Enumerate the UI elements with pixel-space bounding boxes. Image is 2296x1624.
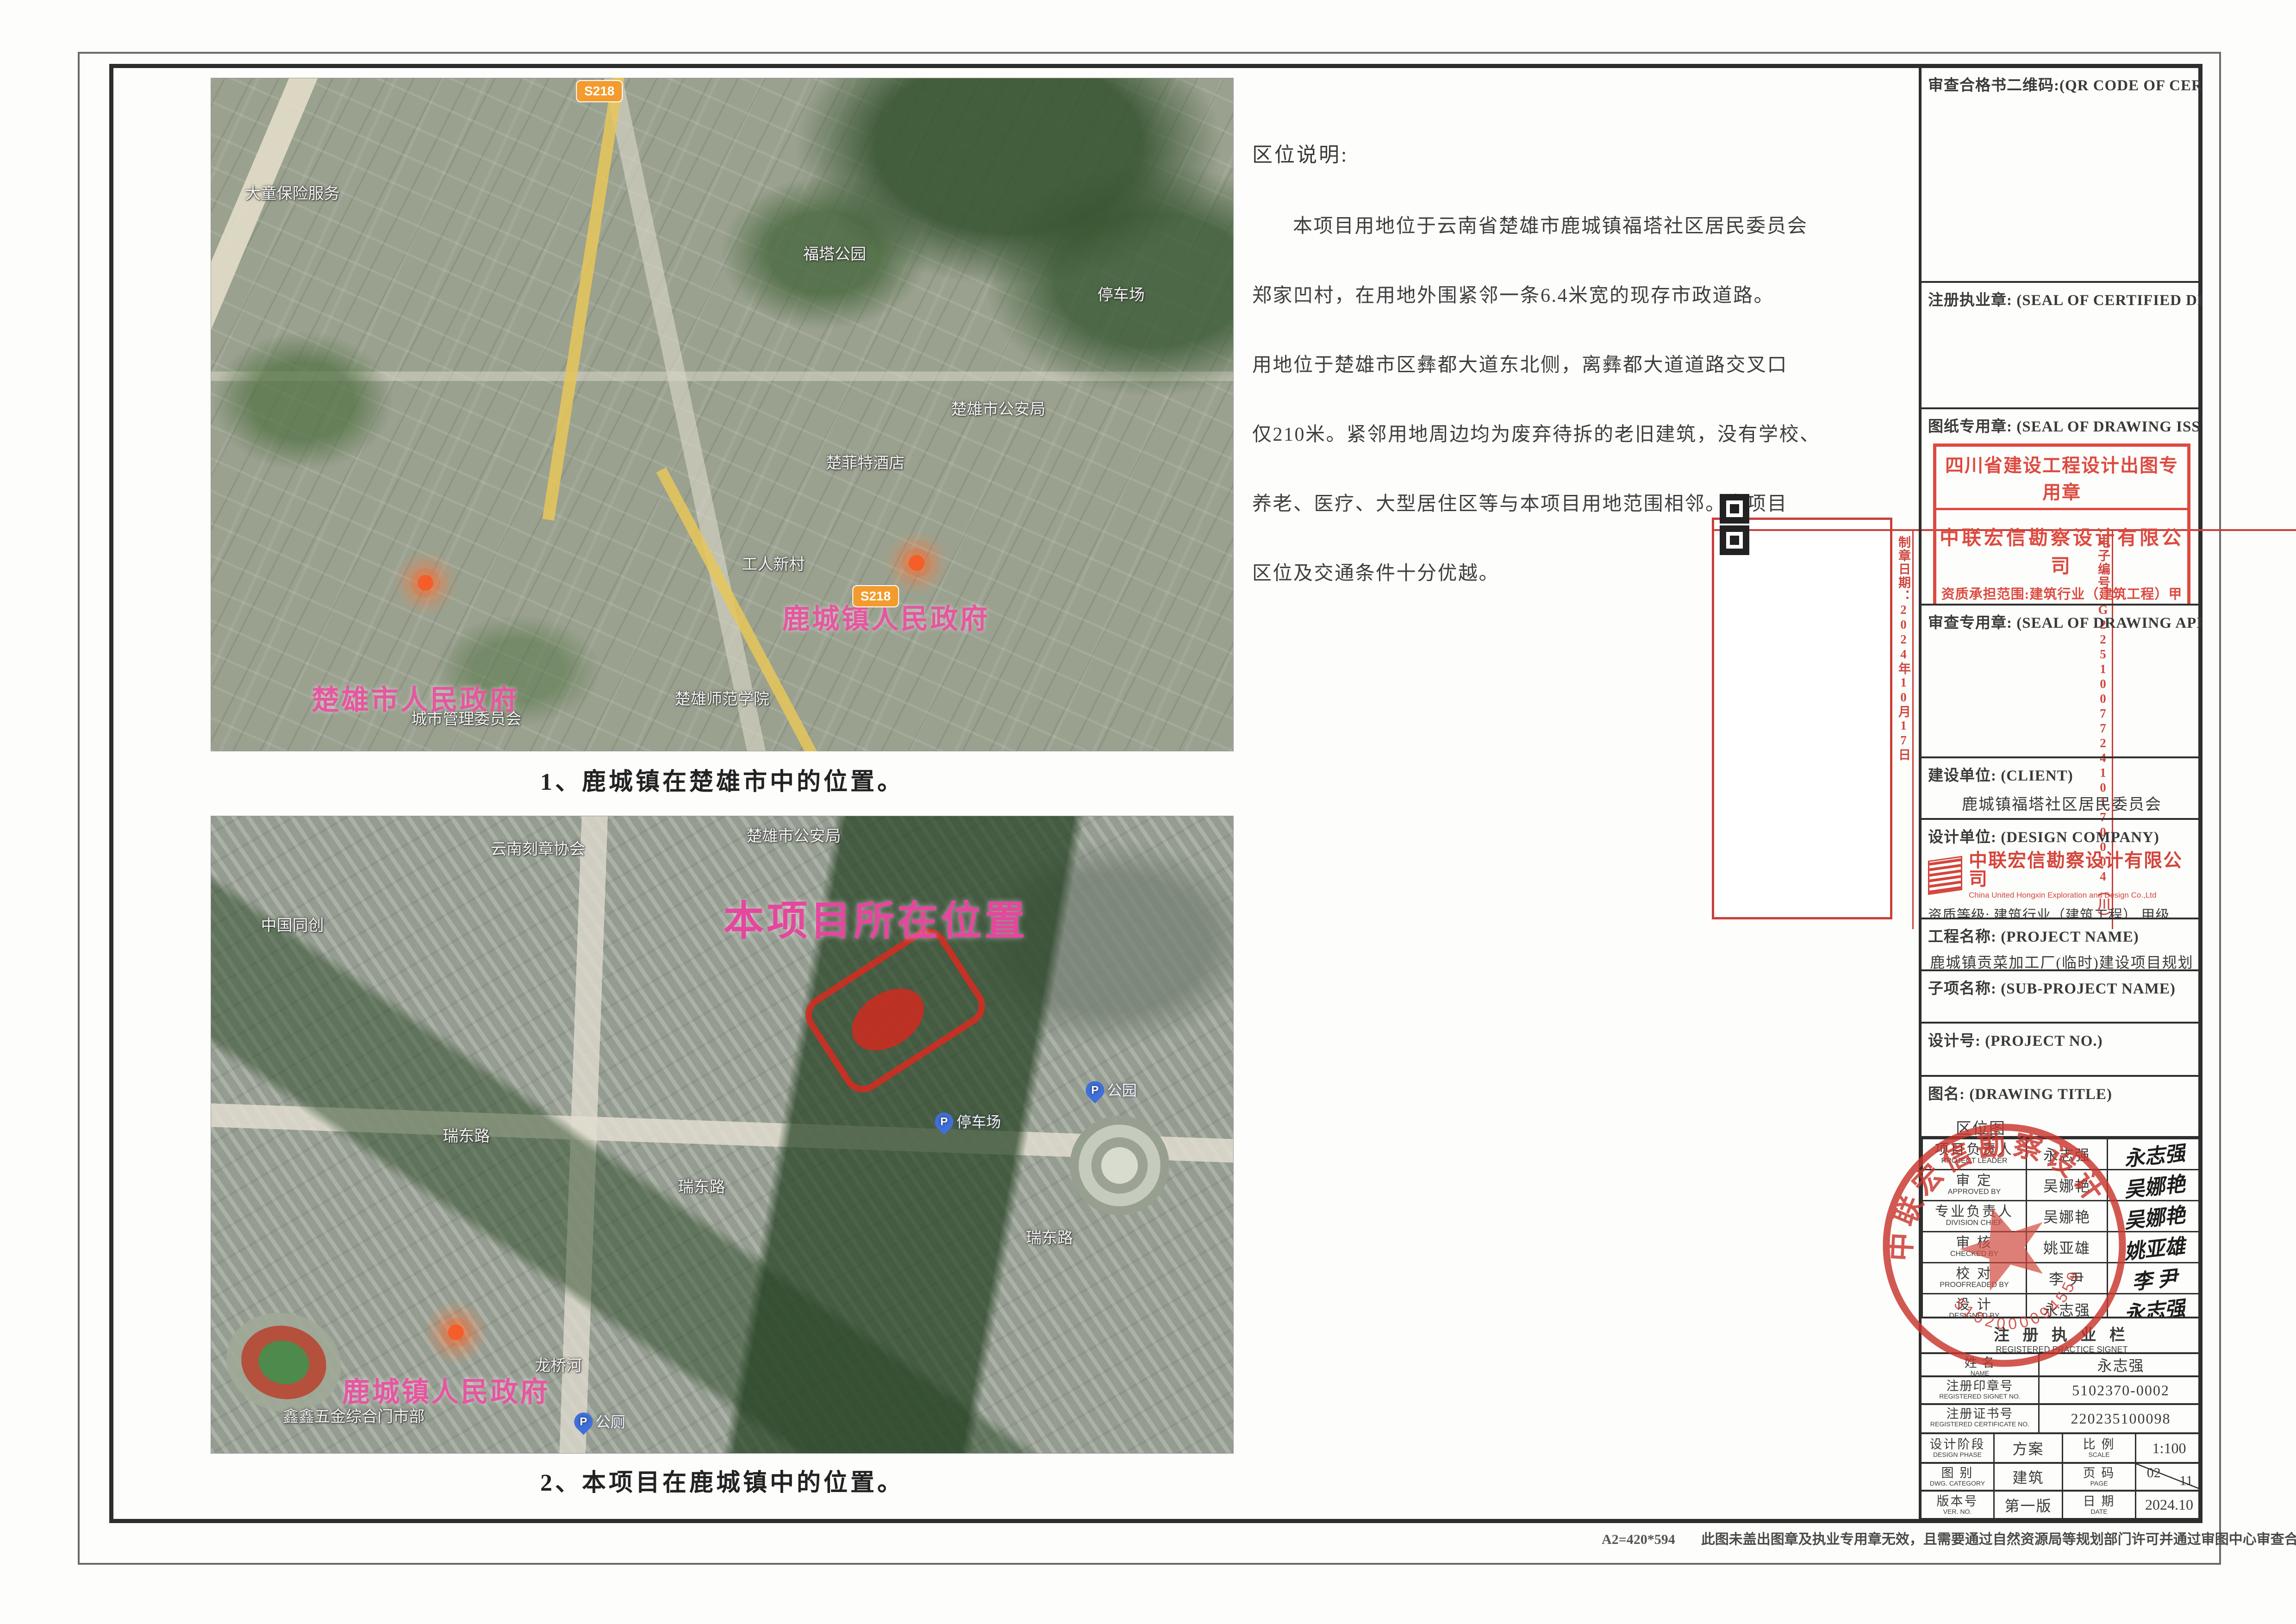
handwritten-signature: 永志强 — [2122, 1294, 2186, 1319]
page-current: 02 — [2147, 1465, 2161, 1481]
handwritten-signature: 吴娜艳 — [2122, 1170, 2186, 1201]
reg-row-value: 220235100098 — [2040, 1405, 2202, 1432]
title-block-footer-grid: 设计阶段DESIGN PHASE方案比 例SCALE1:100图 别DWG. C… — [1922, 1434, 2202, 1520]
signature-printed-name: 吴娜艳 — [2027, 1170, 2108, 1201]
map-poi-label: 楚雄师范学院 — [675, 686, 769, 709]
grid-label: 版本号VER. NO. — [1922, 1492, 1995, 1518]
signature-printed-name: 李 尹 — [2027, 1263, 2108, 1294]
signature-row: 设 计DESIGNED BY永志强永志强 — [1922, 1294, 2202, 1319]
map-poi-label: 福塔公园 — [803, 242, 866, 264]
section-project-name: 工程名称: (PROJECT NAME) 鹿城镇贡菜加工厂(临时)建设项目规划设… — [1922, 919, 2202, 971]
stamp-company: 中联宏信勘察设计有限公司 — [1938, 522, 2185, 579]
grid-label: 图 别DWG. CATEGORY — [1922, 1464, 1995, 1490]
registered-practice-row: 注册印章号REGISTERED SIGNET NO.5102370-0002 — [1922, 1377, 2202, 1405]
page-total: 11 — [2179, 1473, 2193, 1489]
reg-header-en: REGISTERED PRACTICE SIGNET — [1928, 1345, 2196, 1354]
registered-practice-row: 注册证书号REGISTERED CERTIFICATE NO.220235100… — [1922, 1405, 2202, 1434]
stamp-scope: 资质承担范围:建筑行业（建筑工程）甲级 — [1938, 583, 2185, 606]
signature-row: 审 核CHECKED BY姚亚雄姚亚雄 — [1922, 1232, 2202, 1263]
signature-row: 校 对PROOFREADED BY李 尹李 尹 — [1922, 1263, 2202, 1294]
grid-value: 建筑 — [1995, 1464, 2063, 1490]
reg-row-label: 注册证书号REGISTERED CERTIFICATE NO. — [1922, 1405, 2040, 1432]
map-poi-label: 瑞东路 — [1026, 1225, 1073, 1248]
map-poi-label: 楚雄市公安局 — [951, 396, 1046, 419]
gov-location-marker-icon — [882, 528, 951, 598]
signature-table: 项目负责人PROJECT LEADER永志强永志强审 定APPROVED BY吴… — [1922, 1138, 2202, 1318]
gov-location-marker-icon — [391, 548, 460, 618]
section-label: 子项名称: (SUB-PROJECT NAME) — [1928, 976, 2196, 998]
qr-stamp-column-text: 制章日期：2024年10月17日 — [1714, 531, 1912, 929]
grid-label: 日 期DATE — [2063, 1492, 2136, 1518]
reg-header-cn: 注 册 执 业 栏 — [1928, 1322, 2196, 1345]
section-label: 设计号: (PROJECT NO.) — [1928, 1028, 2196, 1050]
satellite-map-town: 楚雄市公安局云南刻章协会中国同创瑞东路瑞东路瑞东路P停车场P公园龙桥河鑫鑫五金综… — [211, 816, 1234, 1454]
section-approval-seal: 审查专用章: (SEAL OF DRAWING APPROVAL) — [1922, 606, 2202, 758]
map2-caption: 2、本项目在鹿城镇中的位置。 — [211, 1463, 1234, 1498]
section-label: 图纸专用章: (SEAL OF DRAWING ISSUEE) — [1928, 414, 2196, 436]
map-poi-label: 中国同创 — [261, 913, 324, 936]
handwritten-signature: 吴娜艳 — [2122, 1201, 2186, 1232]
map-pin-icon: P — [931, 1109, 958, 1135]
signature-cell: 永志强 — [2108, 1294, 2202, 1319]
company-name-en: China United Hongxin Exploration and Des… — [1969, 891, 2196, 899]
signature-cell: 姚亚雄 — [2108, 1232, 2202, 1263]
section-label: 注册执业章: (SEAL OF CERTIFIED DESIGNER) — [1928, 287, 2196, 310]
description-line: 郑家凹村，在用地外围紧邻一条6.4米宽的现存市政道路。 — [1252, 285, 1909, 306]
section-label: 图名: (DRAWING TITLE) — [1928, 1081, 2196, 1104]
grid-label: 设计阶段DESIGN PHASE — [1922, 1434, 1995, 1462]
signature-role: 校 对PROOFREADED BY — [1922, 1263, 2027, 1294]
section-sub-project: 子项名称: (SUB-PROJECT NAME) — [1922, 971, 2202, 1024]
map-poi-label: 楚雄市公安局 — [747, 824, 841, 846]
handwritten-signature: 永志强 — [2122, 1139, 2186, 1170]
signature-cell: 李 尹 — [2108, 1263, 2202, 1294]
reg-row-value: 5102370-0002 — [2040, 1377, 2202, 1403]
map-poi-label: 大童保险服务 — [245, 181, 340, 204]
signature-row: 项目负责人PROJECT LEADER永志强永志强 — [1922, 1139, 2202, 1170]
drawing-sheet: 大童保险服务福塔公园停车场楚雄市公安局楚菲特酒店工人新村城市管理委员会楚雄师范学… — [0, 0, 2296, 1624]
grid-value: 2024.10 — [2136, 1492, 2202, 1518]
signature-printed-name: 姚亚雄 — [2027, 1232, 2108, 1263]
map-poi-label: P停车场 — [934, 1111, 1001, 1133]
page-number-cell: 0211 — [2136, 1464, 2202, 1490]
map-poi-label: S218 — [576, 80, 623, 102]
stamp-body: 中联宏信勘察设计有限公司 资质承担范围:建筑行业（建筑工程）甲级 — [1936, 510, 2187, 606]
map-poi-label: 云南刻章协会 — [491, 836, 585, 859]
signature-cell: 永志强 — [2108, 1139, 2202, 1170]
description-line: 仅210米。紧邻用地周边均为废弃待拆的老旧建筑，没有学校、 — [1252, 424, 1909, 445]
paper-size-note: A2=420*594 — [1602, 1532, 1675, 1548]
map-poi-label: 瑞东路 — [678, 1174, 725, 1197]
footer-grid-row: 版本号VER. NO.第一版日 期DATE2024.10 — [1922, 1492, 2202, 1520]
section-label: 建设单位: (CLIENT) — [1928, 763, 2196, 785]
signature-cell: 吴娜艳 — [2108, 1170, 2202, 1201]
footer-grid-row: 图 别DWG. CATEGORY建筑页 码PAGE0211 — [1922, 1464, 2202, 1492]
description-line: 养老、医疗、大型居住区等与本项目用地范围相邻。本项目 — [1252, 493, 1909, 515]
company-names: 中联宏信勘察设计有限公司 China United Hongxin Explor… — [1969, 851, 2196, 899]
section-label: 工程名称: (PROJECT NAME) — [1928, 924, 2196, 946]
map1-label-layer: 大童保险服务福塔公园停车场楚雄市公安局楚菲特酒店工人新村城市管理委员会楚雄师范学… — [211, 78, 1234, 751]
description-title: 区位说明: — [1252, 138, 1909, 168]
section-drawing-seal: 图纸专用章: (SEAL OF DRAWING ISSUEE) 四川省建设工程设… — [1922, 409, 2202, 606]
qr-finder-icon — [1720, 525, 1749, 555]
section-project-no: 设计号: (PROJECT NO.) — [1922, 1024, 2202, 1077]
map-pin-icon: P — [570, 1409, 597, 1435]
grid-value: 第一版 — [1995, 1492, 2063, 1518]
signature-printed-name: 吴娜艳 — [2027, 1201, 2108, 1232]
description-line: 用地位于楚雄市区彝都大道东北侧，离彝都大道道路交叉口 — [1252, 355, 1909, 376]
signature-role: 项目负责人PROJECT LEADER — [1922, 1139, 2027, 1170]
section-design-company: 设计单位: (DESIGN COMPANY) 中联宏信勘察设计有限公司 Chin… — [1922, 820, 2202, 919]
map-poi-label: S218 — [852, 585, 899, 607]
section-client: 建设单位: (CLIENT) 鹿城镇福塔社区居民委员会 — [1922, 758, 2202, 820]
drawing-title: 区位图 — [1956, 1116, 2196, 1138]
map2-label-layer: 楚雄市公安局云南刻章协会中国同创瑞东路瑞东路瑞东路P停车场P公园龙桥河鑫鑫五金综… — [211, 816, 1234, 1454]
reg-row-label: 姓 名NAME — [1922, 1354, 2040, 1375]
disclaimer-text: 此图未盖出图章及执业专用章无效，且需要通过自然资源局等规划部门许可并通过审图中心… — [1701, 1528, 2296, 1548]
company-grade: 资质等级: 建筑行业（建筑工程） 甲级 — [1928, 904, 2196, 919]
title-block: 审查合格书二维码:(QR CODE OF CERTIFICATION) 注册执业… — [1919, 68, 2202, 1520]
registered-practice-row: 姓 名NAME永志强 — [1922, 1354, 2202, 1377]
signature-role: 审 核CHECKED BY — [1922, 1232, 2027, 1263]
reg-row-value: 永志强 — [2040, 1354, 2202, 1375]
section-certification-qr: 审查合格书二维码:(QR CODE OF CERTIFICATION) — [1922, 68, 2202, 283]
map-poi-label: P公厕 — [574, 1411, 625, 1433]
client-name: 鹿城镇福塔社区居民委员会 — [1928, 792, 2196, 814]
grid-label: 页 码PAGE — [2063, 1464, 2136, 1490]
map-annotation-label: 鹿城镇人民政府 — [342, 1370, 549, 1410]
company-logo-icon — [1928, 856, 1962, 894]
section-drawing-title: 图名: (DRAWING TITLE) 区位图 — [1922, 1077, 2202, 1138]
map-poi-label: 停车场 — [1098, 282, 1145, 305]
company-name-cn: 中联宏信勘察设计有限公司 — [1969, 851, 2196, 888]
section-label: 审查合格书二维码:(QR CODE OF CERTIFICATION) — [1928, 73, 2196, 95]
sichuan-drawing-issue-stamp: 四川省建设工程设计出图专用章 中联宏信勘察设计有限公司 资质承担范围:建筑行业（… — [1933, 443, 2190, 606]
map-poi-label: 工人新村 — [742, 551, 805, 574]
qr-finder-icon — [1720, 494, 1749, 524]
signature-role: 审 定APPROVED BY — [1922, 1170, 2027, 1201]
signature-role: 设 计DESIGNED BY — [1922, 1294, 2027, 1319]
map-poi-label: 瑞东路 — [443, 1124, 490, 1146]
handwritten-signature: 姚亚雄 — [2122, 1232, 2186, 1263]
section-registered-practice-header: 注 册 执 业 栏 REGISTERED PRACTICE SIGNET — [1922, 1318, 2202, 1354]
section-designer-seal: 注册执业章: (SEAL OF CERTIFIED DESIGNER) — [1922, 283, 2202, 409]
company-logo-row: 中联宏信勘察设计有限公司 China United Hongxin Explor… — [1928, 851, 2196, 899]
signature-printed-name: 永志强 — [2027, 1294, 2108, 1319]
stamp-title: 四川省建设工程设计出图专用章 — [1936, 447, 2187, 510]
grid-value: 1:100 — [2136, 1434, 2202, 1462]
map-pin-icon: P — [1082, 1077, 1108, 1104]
map-annotation-label: 本项目所在位置 — [723, 888, 1028, 947]
section-label: 设计单位: (DESIGN COMPANY) — [1928, 824, 2196, 847]
satellite-map-city: 大童保险服务福塔公园停车场楚雄市公安局楚菲特酒店工人新村城市管理委员会楚雄师范学… — [211, 78, 1234, 751]
reg-row-label: 注册印章号REGISTERED SIGNET NO. — [1922, 1377, 2040, 1403]
map-annotation-label: 楚雄市人民政府 — [312, 677, 519, 718]
project-name: 鹿城镇贡菜加工厂(临时)建设项目规划设计方案 — [1928, 951, 2196, 971]
registered-practice-rows: 姓 名NAME永志强注册印章号REGISTERED SIGNET NO.5102… — [1922, 1354, 2202, 1434]
description-line: 本项目用地位于云南省楚雄市鹿城镇福塔社区居民委员会 — [1252, 216, 1909, 237]
signature-printed-name: 永志强 — [2027, 1139, 2108, 1170]
sheet-footer-note: A2=420*594 此图未盖出图章及执业专用章无效，且需要通过自然资源局等规划… — [1602, 1528, 2208, 1548]
planning-qr-stamp: 项目名称：鹿城镇贡菜加工厂（临时）建设项目规划设计方案编制单位：中联宏信勘察设计… — [1712, 518, 1892, 919]
signature-role: 专业负责人DIVISION CHIEF — [1922, 1201, 2027, 1232]
section-signatures: 项目负责人PROJECT LEADER永志强永志强审 定APPROVED BY吴… — [1922, 1138, 2202, 1318]
grid-label: 比 例SCALE — [2063, 1434, 2136, 1462]
footer-grid-row: 设计阶段DESIGN PHASE方案比 例SCALE1:100 — [1922, 1434, 2202, 1464]
map1-caption: 1、鹿城镇在楚雄市中的位置。 — [211, 762, 1234, 797]
section-label: 审查专用章: (SEAL OF DRAWING APPROVAL) — [1928, 610, 2196, 632]
handwritten-signature: 李 尹 — [2130, 1263, 2178, 1294]
map-poi-label: P公园 — [1085, 1079, 1137, 1101]
signature-cell: 吴娜艳 — [2108, 1201, 2202, 1232]
signature-row: 专业负责人DIVISION CHIEF吴娜艳吴娜艳 — [1922, 1201, 2202, 1232]
gov-location-marker-icon — [421, 1298, 491, 1367]
grid-value: 方案 — [1995, 1434, 2063, 1462]
signature-row: 审 定APPROVED BY吴娜艳吴娜艳 — [1922, 1170, 2202, 1201]
map-poi-label: 楚菲特酒店 — [826, 450, 905, 473]
